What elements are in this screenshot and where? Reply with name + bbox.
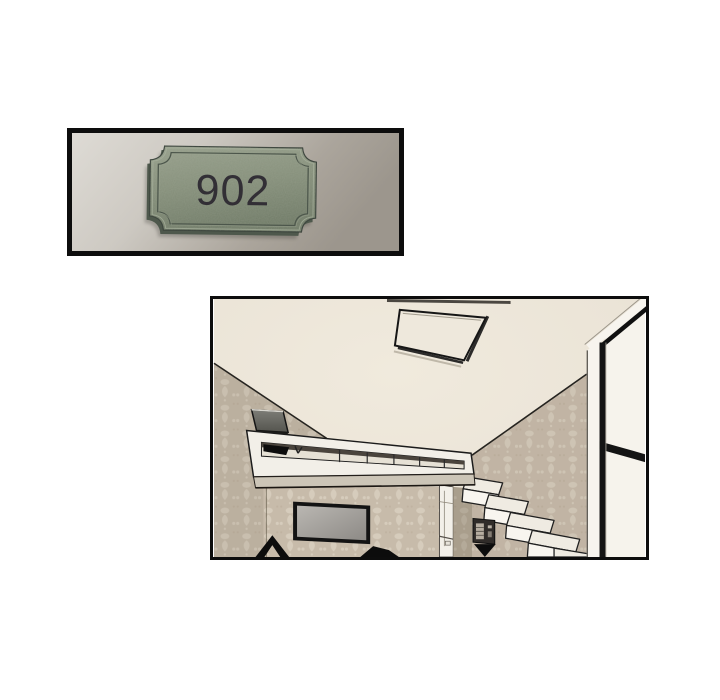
- partition-pane: [605, 304, 645, 557]
- outlet: [445, 541, 450, 545]
- partition-post: [587, 342, 600, 557]
- room-illustration: [213, 299, 646, 557]
- ceiling-sketch-line: [387, 300, 511, 302]
- panel-apartment-interior: [210, 296, 649, 560]
- room-number: 902: [195, 166, 270, 215]
- door-sign-plaque: 902: [144, 146, 316, 239]
- wall-appliance: [473, 518, 495, 544]
- door-sign-photo: 902: [72, 133, 399, 251]
- panel-door-sign: 902: [67, 128, 404, 256]
- comic-page: 902: [0, 0, 720, 700]
- tv: [293, 502, 370, 545]
